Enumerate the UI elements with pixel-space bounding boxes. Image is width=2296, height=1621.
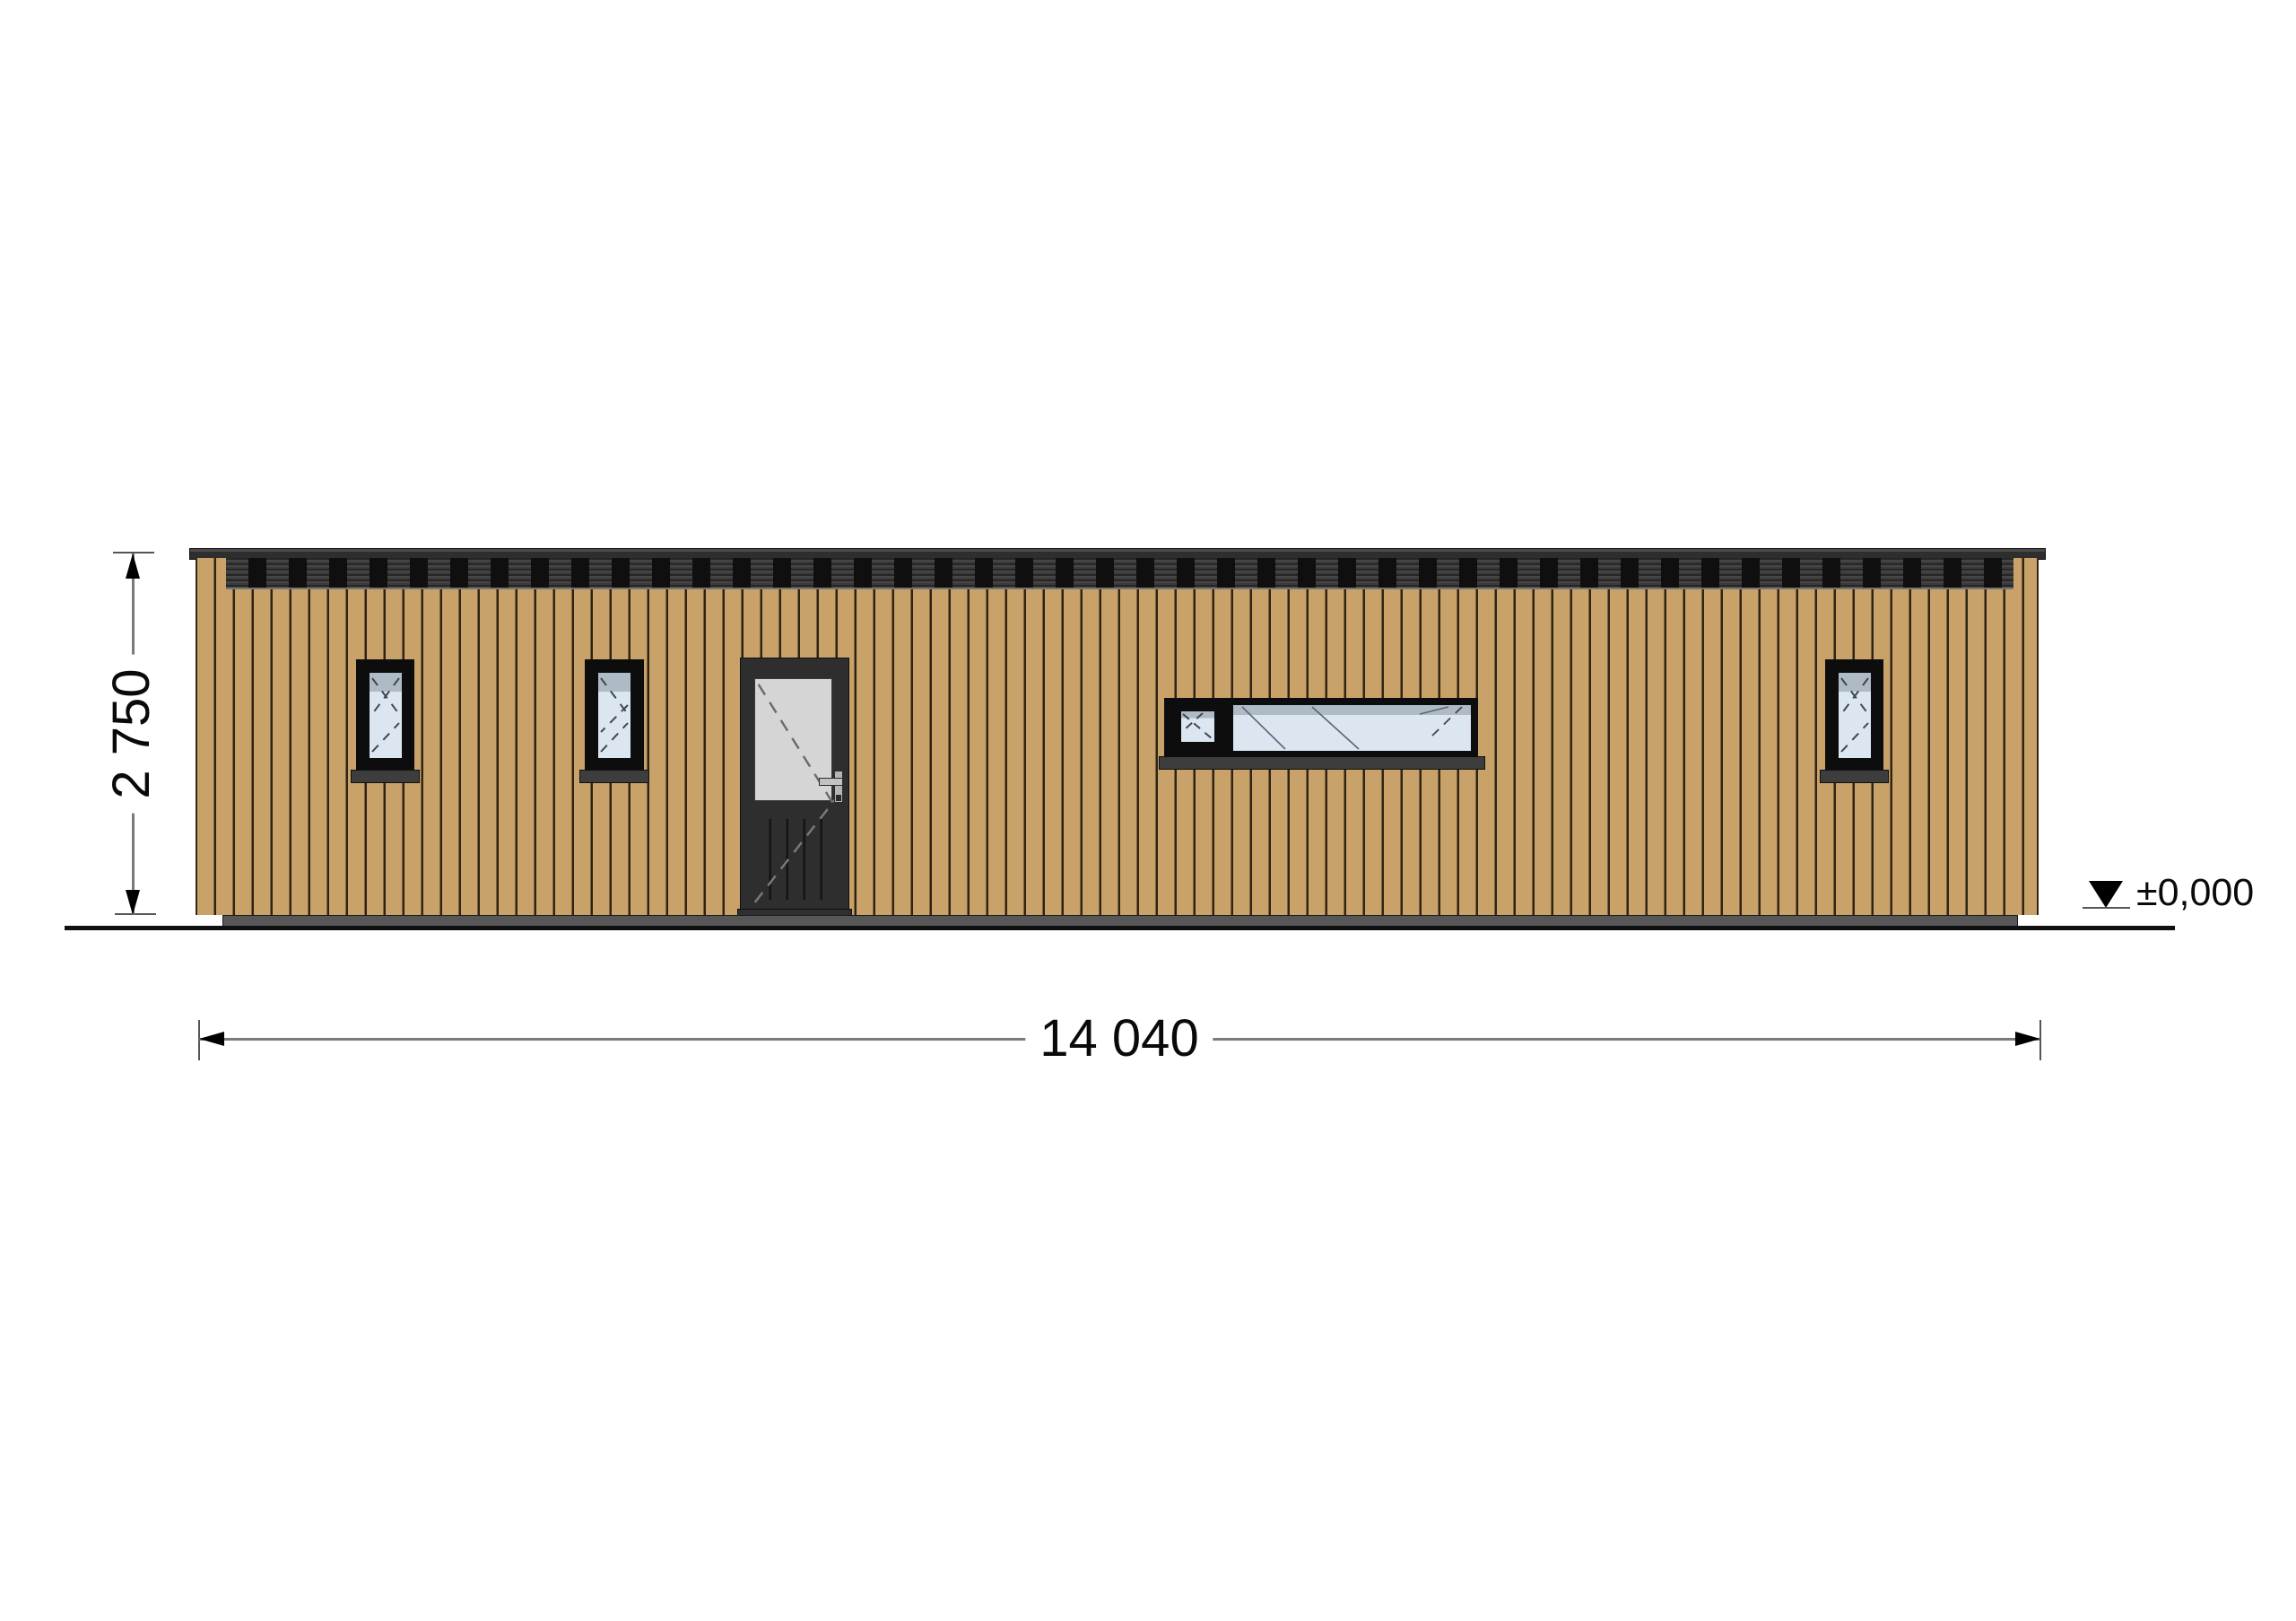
dimension-arrow-icon: [126, 890, 140, 915]
glazing-marks-icon: [598, 673, 631, 758]
dimension-arrow-icon: [2015, 1032, 2040, 1046]
window-horizontal-band: [1164, 698, 1478, 756]
roof-batten-band: [226, 558, 2013, 589]
window-glass: [598, 673, 631, 758]
window-sill: [1820, 770, 1889, 783]
window-sill: [1159, 756, 1485, 770]
window-left-1: [356, 659, 414, 771]
entrance-door: [740, 658, 849, 915]
ground-level-label: ±0,000: [2136, 874, 2254, 912]
window-sill: [579, 770, 649, 783]
glazing-marks-icon: [1839, 673, 1871, 758]
height-dimension-label: 2 750: [102, 654, 161, 813]
ground-line: [65, 926, 2175, 930]
window-sill: [351, 770, 420, 783]
door-keyhole-icon: [836, 795, 841, 801]
door-handle-icon: [819, 778, 843, 786]
door-swing-marks-icon: [741, 658, 848, 914]
dimension-arrow-icon: [126, 553, 140, 579]
window-glass: [1839, 673, 1871, 758]
glazing-marks-icon: [1181, 711, 1214, 742]
window-glass: [370, 673, 402, 758]
level-marker-underline: [2083, 907, 2130, 909]
window-left-2: [585, 659, 644, 771]
width-dimension-label: 14 040: [1025, 1009, 1213, 1068]
window-right: [1825, 659, 1883, 771]
wood-siding-wall: [196, 558, 2039, 915]
dimension-arrow-icon: [199, 1032, 224, 1046]
window-main-pane: [1233, 705, 1471, 751]
window-small-pane: [1181, 711, 1214, 742]
glazing-marks-icon: [370, 673, 402, 758]
elevation-drawing: 2 750 14 040 ±0,000: [0, 0, 2296, 1621]
level-marker-icon: [2089, 881, 2123, 908]
glazing-marks-icon: [1233, 705, 1471, 751]
